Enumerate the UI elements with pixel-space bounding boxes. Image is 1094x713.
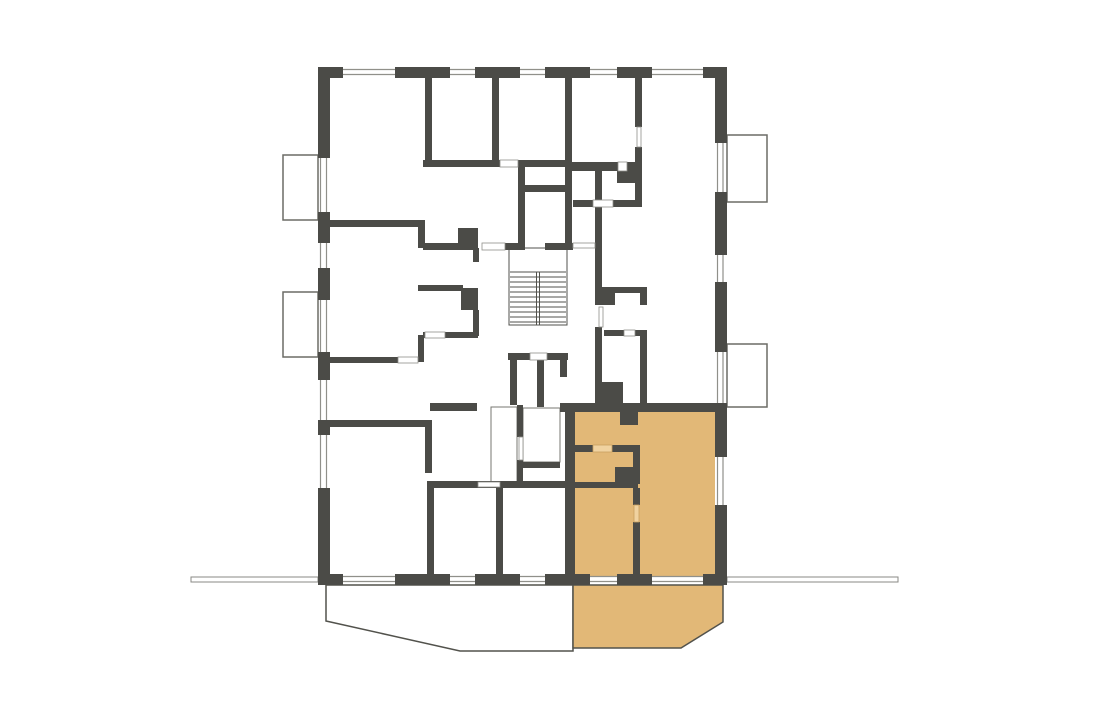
ground-line-segment	[727, 577, 898, 582]
door-opening	[500, 160, 518, 167]
wall-segment	[565, 405, 575, 577]
unit-fill[interactable]	[566, 406, 715, 576]
wall-segment	[612, 445, 640, 452]
staircase	[509, 248, 567, 325]
wall-segment	[318, 420, 330, 435]
unit-terrace[interactable]	[573, 585, 723, 648]
wall-segment	[517, 462, 560, 468]
wall-segment	[635, 147, 642, 207]
wall-segment	[633, 522, 640, 575]
wall-segment	[545, 67, 590, 78]
door-opening	[618, 162, 627, 171]
wall-segment	[430, 403, 477, 411]
wall-segment	[395, 67, 450, 78]
wall-segment	[635, 77, 642, 127]
balcony	[283, 155, 318, 220]
wall-segment	[525, 185, 567, 192]
balcony	[283, 292, 318, 357]
wall-segment	[475, 67, 520, 78]
unit-door-opening	[593, 445, 612, 452]
unit-door-opening	[634, 505, 639, 522]
wall-segment	[595, 382, 623, 403]
wall-segment	[418, 285, 463, 291]
wall-segment	[640, 330, 647, 403]
shaft-rooms	[491, 407, 560, 484]
wall-segment	[510, 360, 517, 405]
door-opening	[637, 127, 641, 147]
terrace-left	[326, 585, 573, 651]
balcony	[727, 344, 767, 407]
wall-segment	[330, 357, 398, 363]
highlighted-apartment[interactable]	[566, 406, 723, 648]
door-opening	[478, 482, 500, 487]
ground-line-segment	[191, 577, 318, 582]
wall-segment	[508, 353, 530, 360]
wall-segment	[573, 445, 593, 452]
shaft-room	[523, 408, 560, 462]
door-opening	[599, 307, 603, 327]
wall-segment	[395, 574, 450, 585]
wall-segment	[537, 353, 544, 407]
wall-segment	[425, 77, 432, 163]
wall-segment	[330, 220, 421, 227]
wall-segment	[318, 212, 330, 243]
wall-segment	[496, 488, 503, 575]
terrace-outline	[326, 585, 573, 651]
wall-segment	[318, 352, 330, 380]
door-opening	[573, 243, 595, 248]
wall-segment	[518, 163, 525, 250]
wall-segment	[640, 287, 647, 305]
floor-plan-svg	[0, 0, 1094, 713]
wall-segment	[615, 467, 638, 488]
wall-segment	[633, 488, 640, 505]
wall-segment	[517, 405, 523, 437]
door-opening	[482, 243, 505, 250]
wall-segment	[423, 160, 500, 167]
wall-segment	[595, 163, 602, 287]
wall-segment	[473, 248, 479, 262]
wall-segment	[595, 287, 647, 293]
wall-segment	[715, 67, 727, 143]
wall-segment	[425, 420, 432, 473]
wall-segment	[418, 220, 425, 248]
wall-segment	[518, 160, 565, 167]
wall-segment	[715, 192, 727, 255]
door-opening	[624, 330, 635, 336]
wall-segment	[330, 420, 425, 427]
floor-plan	[0, 0, 1094, 713]
wall-segment	[475, 574, 520, 585]
wall-segment	[573, 200, 593, 207]
door-opening	[530, 353, 547, 360]
wall-segment	[461, 288, 478, 310]
wall-segment	[715, 282, 727, 352]
wall-segment	[418, 335, 424, 362]
wall-segment	[715, 505, 727, 585]
wall-segment	[427, 488, 434, 575]
wall-segment	[620, 412, 638, 425]
door-opening	[425, 332, 445, 338]
wall-segment	[613, 200, 642, 207]
wall-segment	[560, 403, 727, 412]
door-opening	[519, 437, 523, 460]
wall-segment	[617, 574, 652, 585]
wall-segment	[617, 67, 652, 78]
door-opening	[398, 357, 418, 363]
wall-segment	[318, 488, 330, 585]
wall-segment	[492, 77, 499, 163]
shaft-room	[491, 407, 517, 484]
wall-segment	[545, 243, 573, 250]
wall-segment	[318, 67, 330, 158]
wall-segment	[318, 268, 330, 300]
door-opening	[593, 200, 613, 207]
wall-segment	[560, 353, 567, 377]
wall-segment	[458, 228, 478, 248]
balcony	[727, 135, 767, 202]
wall-segment	[565, 77, 572, 250]
wall-segment	[604, 330, 624, 336]
wall-segment	[505, 243, 518, 250]
wall-segment	[595, 293, 615, 305]
